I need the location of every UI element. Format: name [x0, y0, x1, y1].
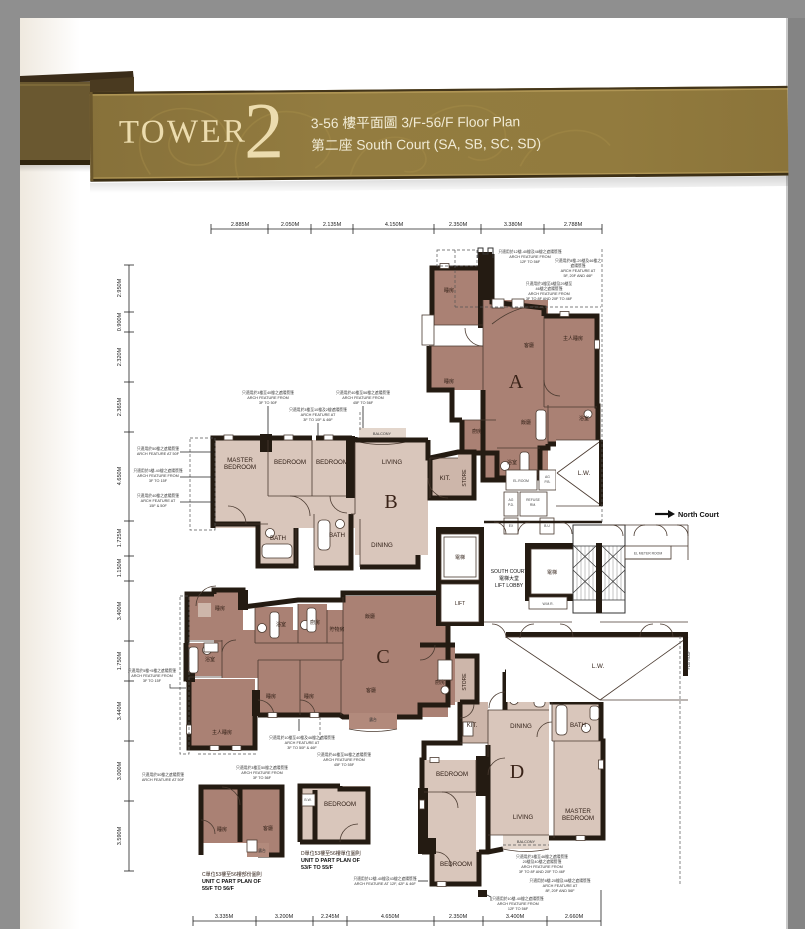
svg-text:UNIT C PART PLAN OF: UNIT C PART PLAN OF — [202, 879, 262, 885]
svg-text:LIFT LOBBY: LIFT LOBBY — [495, 583, 524, 589]
svg-text:BATH: BATH — [570, 722, 586, 729]
svg-text:ARCH FEATURE FROM: ARCH FEATURE FROM — [323, 758, 364, 762]
svg-text:遮陽簷篷: 遮陽簷篷 — [570, 263, 585, 268]
svg-text:2.135M: 2.135M — [323, 222, 342, 228]
svg-text:露台: 露台 — [369, 717, 377, 722]
svg-text:3F TO 50F: 3F TO 50F — [259, 401, 278, 405]
svg-text:廚房: 廚房 — [310, 619, 320, 626]
svg-text:2.350M: 2.350M — [449, 914, 468, 920]
svg-text:ARCH FEATURE AT: ARCH FEATURE AT — [141, 499, 176, 503]
svg-text:3.200M: 3.200M — [275, 914, 294, 920]
svg-text:BEDROOM: BEDROOM — [324, 801, 356, 808]
svg-text:2: 2 — [244, 87, 285, 175]
svg-text:45F TO 55F: 45F TO 55F — [334, 763, 355, 767]
svg-text:BEDROOM: BEDROOM — [562, 815, 594, 822]
svg-text:睡房: 睡房 — [217, 826, 227, 833]
svg-text:W.M.R.: W.M.R. — [542, 602, 553, 606]
svg-text:55/F TO 56/F: 55/F TO 56/F — [202, 886, 235, 892]
svg-text:ARCH FEATURE FROM: ARCH FEATURE FROM — [247, 396, 288, 400]
svg-text:ARCH FEATURE FROM: ARCH FEATURE FROM — [497, 902, 538, 906]
svg-text:2.365M: 2.365M — [117, 397, 123, 416]
svg-text:貯物房: 貯物房 — [329, 626, 344, 633]
svg-text:AG: AG — [509, 498, 514, 502]
svg-text:2.320M: 2.320M — [117, 347, 123, 366]
svg-text:KIT.: KIT. — [467, 722, 478, 729]
svg-text:2.788M: 2.788M — [564, 222, 583, 228]
svg-text:4.650M: 4.650M — [117, 466, 123, 485]
svg-text:BEDROOM: BEDROOM — [316, 459, 348, 466]
svg-text:ARCH FEATURE AT: ARCH FEATURE AT — [285, 741, 320, 745]
svg-text:ARCH FEATURE AT 50F: ARCH FEATURE AT 50F — [142, 778, 185, 782]
svg-text:只適用於10樓至40樓及46樓之遮陽簷篷: 只適用於10樓至40樓及46樓之遮陽簷篷 — [269, 735, 335, 740]
svg-text:UNIT D PART PLAN OF: UNIT D PART PLAN OF — [301, 858, 361, 864]
svg-text:BATH: BATH — [329, 532, 345, 539]
svg-text:只適用於10樓-40樓之遮陽簷篷: 只適用於10樓-40樓之遮陽簷篷 — [492, 896, 544, 901]
svg-text:45F TO 56F: 45F TO 56F — [353, 401, 374, 405]
svg-text:只適用於3樓至46樓之遮陽簷篷: 只適用於3樓至46樓之遮陽簷篷 — [516, 854, 568, 859]
svg-text:BEDROOM: BEDROOM — [224, 464, 256, 471]
svg-text:ARCH FEATURE FROM: ARCH FEATURE FROM — [509, 255, 550, 259]
svg-text:L.W.: L.W. — [592, 663, 605, 670]
svg-text:3F TO 10F & 46F: 3F TO 10F & 46F — [303, 418, 333, 422]
svg-text:BEDROOM: BEDROOM — [436, 771, 468, 778]
svg-text:5F, 20F AND 46F: 5F, 20F AND 46F — [563, 274, 593, 278]
svg-text:睡房: 睡房 — [304, 693, 314, 700]
svg-text:12F TO 56F: 12F TO 56F — [520, 260, 541, 264]
svg-text:12F TO 56F: 12F TO 56F — [508, 907, 529, 911]
svg-text:ARCH FEATURE FROM: ARCH FEATURE FROM — [528, 292, 569, 296]
svg-text:1.725M: 1.725M — [117, 528, 123, 547]
svg-text:3.400M: 3.400M — [117, 601, 123, 620]
svg-text:AG: AG — [545, 475, 550, 479]
svg-text:2.885M: 2.885M — [231, 222, 250, 228]
svg-text:3F TO 8F AND 20F TO 46F: 3F TO 8F AND 20F TO 46F — [519, 870, 566, 874]
svg-text:ARCH FEATURE FROM: ARCH FEATURE FROM — [137, 474, 178, 478]
svg-text:只適用於46樓至56樓之遮陽簷篷: 只適用於46樓至56樓之遮陽簷篷 — [317, 752, 371, 757]
svg-text:ARCH FEATURE AT: ARCH FEATURE AT — [301, 413, 336, 417]
svg-text:53/F TO 55/F: 53/F TO 55/F — [301, 865, 334, 871]
svg-text:B.U: B.U — [544, 524, 550, 528]
svg-text:2.350M: 2.350M — [449, 222, 468, 228]
svg-text:3.400M: 3.400M — [506, 914, 525, 920]
svg-text:ARCH FEATURE AT: ARCH FEATURE AT — [561, 269, 596, 273]
svg-text:ARCH FEATURE FROM: ARCH FEATURE FROM — [521, 865, 562, 869]
svg-text:浴室: 浴室 — [205, 656, 215, 663]
svg-text:EX: EX — [509, 524, 514, 528]
svg-text:LIFT: LIFT — [455, 601, 465, 607]
svg-text:浴室: 浴室 — [276, 621, 286, 628]
svg-text:D單位53樓至56樓單位圖則: D單位53樓至56樓單位圖則 — [301, 850, 361, 857]
svg-text:C: C — [376, 646, 389, 668]
svg-text:B.W.: B.W. — [304, 798, 311, 802]
svg-text:只適用於40樓至56樓之遮陽簷篷: 只適用於40樓至56樓之遮陽簷篷 — [336, 390, 390, 395]
svg-text:4.150M: 4.150M — [385, 222, 404, 228]
svg-text:只適用於8樓-20樓及46樓之遮陽簷篷: 只適用於8樓-20樓及46樓之遮陽簷篷 — [529, 878, 590, 883]
svg-text:ARCH FEATURE FROM: ARCH FEATURE FROM — [342, 396, 383, 400]
svg-text:STORE: STORE — [462, 673, 468, 691]
svg-text:FLAT ROOF: FLAT ROOF — [687, 651, 691, 670]
svg-text:3F TO 8F AND 20F TO 46F: 3F TO 8F AND 20F TO 46F — [526, 297, 573, 301]
svg-text:浴室: 浴室 — [507, 459, 517, 466]
svg-text:ARCH FEATURE AT: ARCH FEATURE AT — [543, 884, 578, 888]
svg-text:電梯: 電梯 — [455, 554, 465, 561]
svg-text:只適用於5樓+5樓之遮陽簷篷: 只適用於5樓+5樓之遮陽簷篷 — [128, 668, 176, 673]
svg-text:3.590M: 3.590M — [117, 826, 123, 845]
svg-text:只適用於40樓之遮陽簷篷: 只適用於40樓之遮陽簷篷 — [137, 493, 179, 498]
svg-text:STORE: STORE — [462, 469, 468, 487]
svg-text:2.950M: 2.950M — [117, 278, 123, 297]
svg-text:0.900M: 0.900M — [117, 312, 123, 331]
svg-text:廚房: 廚房 — [435, 679, 445, 686]
svg-text:3F TO 56F: 3F TO 56F — [253, 776, 272, 780]
svg-text:2.245M: 2.245M — [321, 914, 340, 920]
svg-text:主人睡房: 主人睡房 — [563, 335, 583, 342]
svg-text:2.050M: 2.050M — [281, 222, 300, 228]
svg-text:BEDROOM: BEDROOM — [440, 861, 472, 868]
svg-text:只適用於12樓-40樓及48樓之遮陽簷篷: 只適用於12樓-40樓及48樓之遮陽簷篷 — [498, 249, 561, 254]
svg-text:8F, 20F AND 56F: 8F, 20F AND 56F — [545, 889, 575, 893]
svg-text:3F TO 15F: 3F TO 15F — [149, 479, 168, 483]
svg-text:L.W.: L.W. — [578, 470, 591, 477]
svg-text:客廳: 客廳 — [263, 825, 273, 832]
svg-text:KIT.: KIT. — [440, 475, 451, 482]
svg-text:3.440M: 3.440M — [117, 701, 123, 720]
svg-text:RM.: RM. — [530, 503, 536, 507]
svg-text:電梯: 電梯 — [547, 569, 557, 576]
svg-text:浴室: 浴室 — [579, 415, 589, 422]
svg-text:露台: 露台 — [258, 848, 266, 853]
svg-text:客廳: 客廳 — [524, 342, 534, 349]
svg-text:4.650M: 4.650M — [381, 914, 400, 920]
svg-text:ARCH FEATURE AT 50F: ARCH FEATURE AT 50F — [137, 452, 180, 456]
svg-text:ARCH FEATURE FROM: ARCH FEATURE FROM — [241, 771, 282, 775]
svg-text:1.750M: 1.750M — [117, 651, 123, 670]
svg-text:MASTER: MASTER — [565, 808, 591, 815]
svg-text:只適用於3樓-40樓之遮陽簷篷: 只適用於3樓-40樓之遮陽簷篷 — [133, 468, 183, 473]
svg-text:電梯大堂: 電梯大堂 — [499, 575, 519, 582]
svg-text:只適用於3樓至50樓之遮陽簷篷: 只適用於3樓至50樓之遮陽簷篷 — [236, 765, 288, 770]
svg-text:DINING: DINING — [510, 723, 532, 730]
svg-text:ARCH FEATURE AT 12F, 42F & 46F: ARCH FEATURE AT 12F, 42F & 46F — [354, 882, 416, 886]
svg-text:TOWER: TOWER — [119, 114, 245, 151]
svg-text:客廳: 客廳 — [366, 687, 376, 694]
svg-text:C單位53樓至56樓部份圖則: C單位53樓至56樓部份圖則 — [202, 871, 262, 878]
svg-text:P.D.: P.D. — [508, 503, 514, 507]
svg-text:2.660M: 2.660M — [565, 914, 584, 920]
svg-text:睡房: 睡房 — [444, 378, 454, 385]
svg-text:EL METER ROOM: EL METER ROOM — [634, 552, 662, 556]
svg-text:睡房: 睡房 — [266, 693, 276, 700]
svg-text:LIVING: LIVING — [513, 814, 533, 821]
svg-text:睡房: 睡房 — [215, 605, 225, 612]
svg-text:第二座 South Court (SA, SB, SC, S: 第二座 South Court (SA, SB, SC, SD) — [311, 135, 541, 153]
svg-text:MASTER: MASTER — [227, 457, 253, 464]
svg-text:1.150M: 1.150M — [117, 558, 123, 577]
svg-text:BALCONY: BALCONY — [517, 840, 536, 844]
svg-text:BATH: BATH — [270, 535, 286, 542]
svg-text:BEDROOM: BEDROOM — [274, 459, 306, 466]
svg-text:只適用於8樓-29樓及46樓之: 只適用於8樓-29樓及46樓之 — [555, 258, 601, 263]
svg-text:只適用於50樓之遮陽簷篷: 只適用於50樓之遮陽簷篷 — [137, 446, 179, 451]
svg-text:飯廳: 飯廳 — [521, 419, 531, 426]
svg-text:3-56 樓平面圖 3/F-56/F Floor Plan: 3-56 樓平面圖 3/F-56/F Floor Plan — [311, 114, 520, 131]
svg-text:只適用於12樓-40樓及43樓之遮陽簷篷: 只適用於12樓-40樓及43樓之遮陽簷篷 — [353, 876, 416, 881]
svg-text:只適用於3樓至40樓之遮陽簷篷: 只適用於3樓至40樓之遮陽簷篷 — [242, 390, 294, 395]
svg-text:46樓之遮陽簷篷: 46樓之遮陽簷篷 — [535, 286, 562, 291]
svg-text:主人睡房: 主人睡房 — [212, 729, 232, 736]
svg-text:只適用於3樓至8樓及29樓至: 只適用於3樓至8樓及29樓至 — [526, 281, 573, 286]
svg-text:3.380M: 3.380M — [504, 222, 523, 228]
svg-text:3F TO 15F: 3F TO 15F — [143, 679, 162, 683]
svg-text:P.B.: P.B. — [545, 480, 551, 484]
svg-text:A: A — [509, 371, 524, 393]
svg-text:LIVING: LIVING — [382, 459, 402, 466]
svg-text:只適用於50樓之遮陽簷篷: 只適用於50樓之遮陽簷篷 — [142, 772, 184, 777]
svg-text:只適用於3樓至10樓及2樓遮陽簷篷: 只適用於3樓至10樓及2樓遮陽簷篷 — [289, 407, 347, 412]
svg-text:BALCONY: BALCONY — [373, 432, 392, 436]
svg-text:廚房: 廚房 — [472, 428, 482, 435]
svg-text:3.335M: 3.335M — [215, 914, 234, 920]
svg-text:3F TO 50F & 46F: 3F TO 50F & 46F — [287, 746, 317, 750]
svg-text:睡房: 睡房 — [444, 287, 454, 294]
svg-text:15F & 50F: 15F & 50F — [149, 504, 167, 508]
svg-text:3.000M: 3.000M — [117, 761, 123, 780]
svg-text:DINING: DINING — [371, 542, 393, 549]
svg-text:North Court: North Court — [678, 510, 720, 519]
svg-text:ARCH FEATURE FROM: ARCH FEATURE FROM — [131, 674, 172, 678]
svg-text:B: B — [384, 491, 397, 513]
svg-text:EL.ROOM: EL.ROOM — [513, 479, 529, 483]
svg-text:20樓及40樓之遮陽簷篷: 20樓及40樓之遮陽簷篷 — [523, 859, 562, 864]
svg-text:飯廳: 飯廳 — [365, 613, 375, 620]
svg-text:D: D — [510, 761, 524, 783]
svg-text:SOUTH COURT: SOUTH COURT — [491, 569, 528, 575]
svg-text:REFUSE: REFUSE — [526, 498, 540, 502]
